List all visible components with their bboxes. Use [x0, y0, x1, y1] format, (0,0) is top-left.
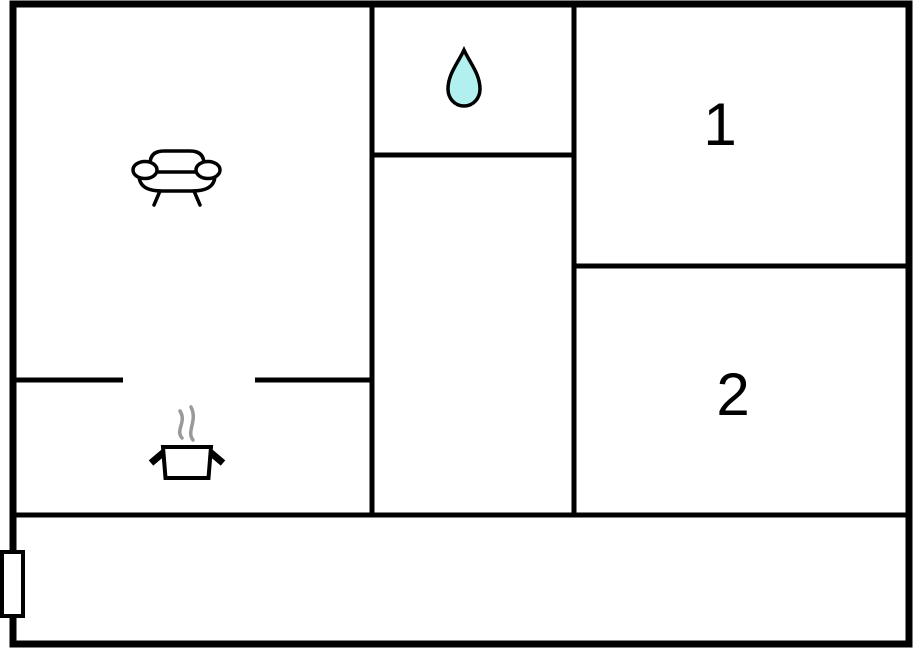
- sofa-armrest-left: [133, 162, 157, 179]
- bedroom-1-label: 1: [703, 91, 736, 158]
- bedroom-2-label: 2: [716, 361, 749, 428]
- floor-plan-drawing: 1 2: [0, 0, 913, 652]
- window-door-marker: [2, 552, 23, 616]
- pot-body: [163, 447, 211, 478]
- floor-plan: 1 2: [0, 0, 913, 652]
- sofa-armrest-right: [196, 162, 220, 179]
